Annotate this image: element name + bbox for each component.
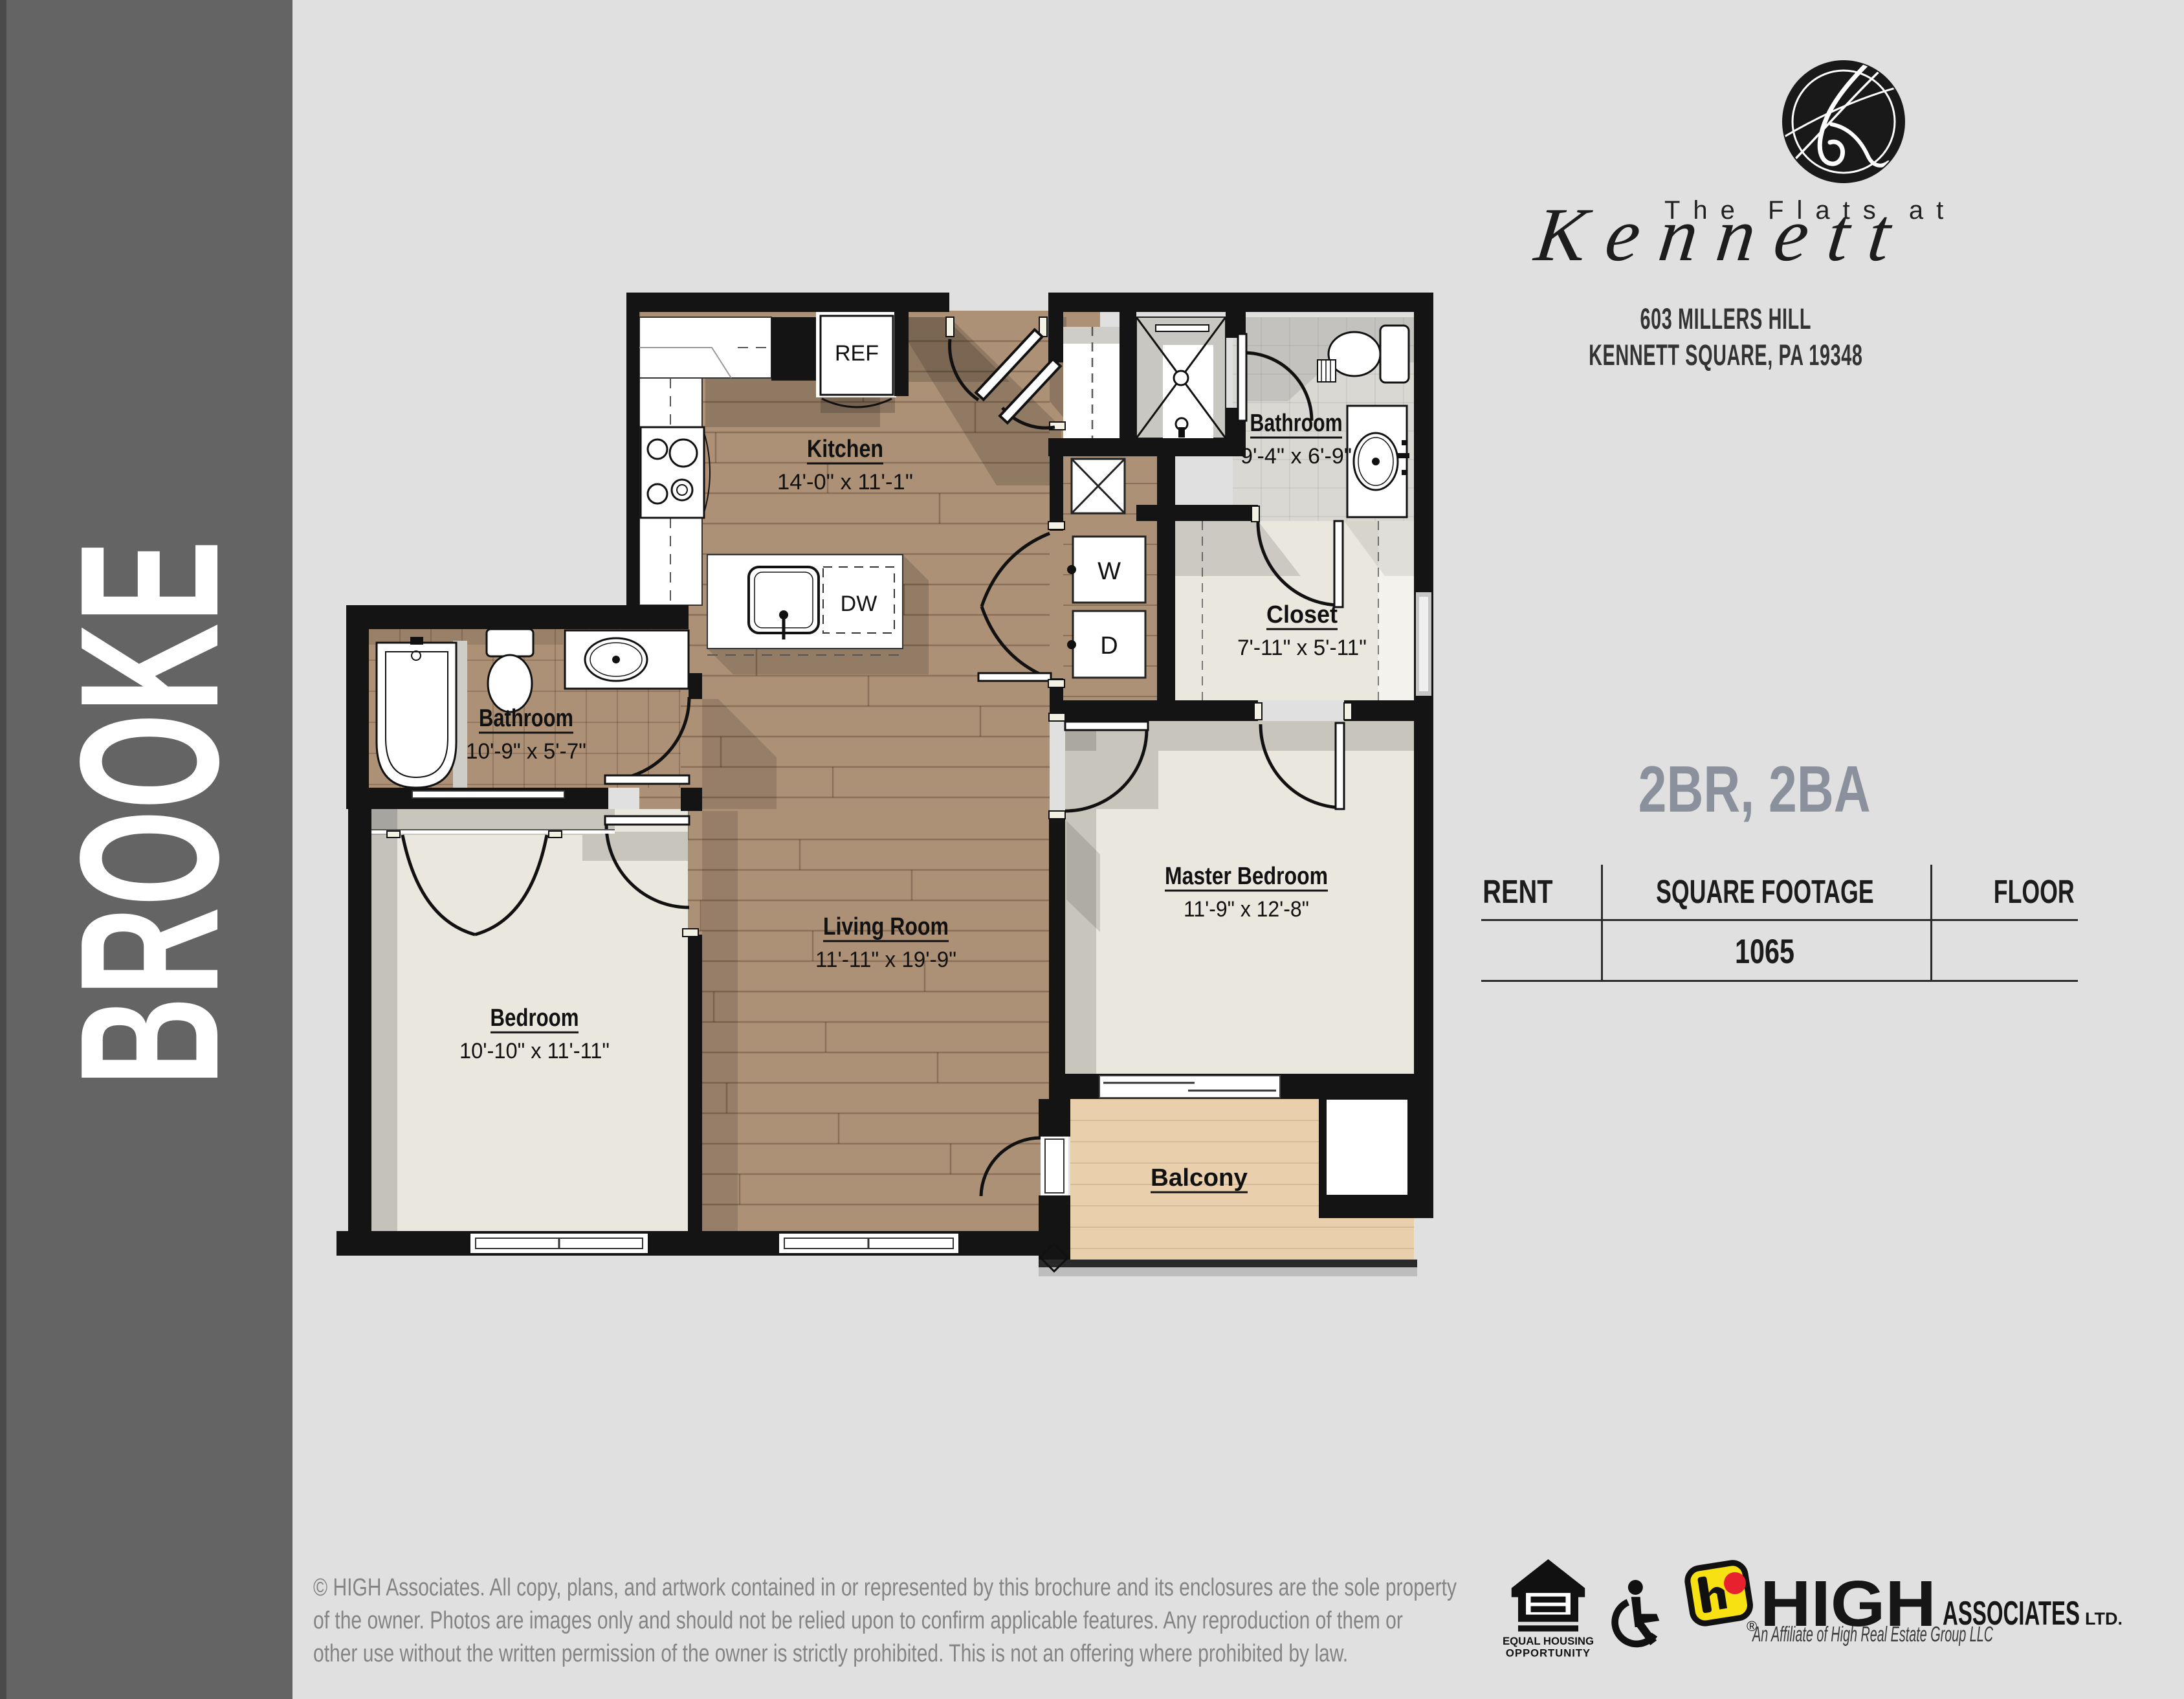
svg-text:7'-11" x 5'-11": 7'-11" x 5'-11" <box>1237 636 1367 660</box>
svg-text:D: D <box>1100 632 1118 660</box>
svg-text:9'-4" x 6'-9": 9'-4" x 6'-9" <box>1241 444 1352 469</box>
svg-text:W: W <box>1098 558 1121 585</box>
svg-text:Bedroom: Bedroom <box>491 1005 579 1032</box>
svg-text:OPPORTUNITY: OPPORTUNITY <box>1506 1647 1591 1660</box>
svg-text:EQUAL HOUSING: EQUAL HOUSING <box>1503 1635 1594 1647</box>
svg-text:REF: REF <box>835 341 879 366</box>
svg-text:10'-9" x 5'-7": 10'-9" x 5'-7" <box>466 739 586 764</box>
svg-text:Bathroom: Bathroom <box>1250 410 1343 437</box>
svg-text:Master Bedroom: Master Bedroom <box>1165 863 1328 890</box>
svg-text:An Affiliate of High Real Esta: An Affiliate of High Real Estate Group L… <box>1752 1622 1994 1646</box>
svg-text:Balcony: Balcony <box>1151 1164 1248 1192</box>
svg-text:DW: DW <box>841 592 877 616</box>
svg-text:14'-0" x 11'-1": 14'-0" x 11'-1" <box>777 470 913 494</box>
svg-text:Kitchen: Kitchen <box>807 436 883 463</box>
svg-text:LTD.: LTD. <box>2085 1609 2123 1628</box>
svg-text:10'-10" x 11'-11": 10'-10" x 11'-11" <box>459 1039 610 1063</box>
svg-text:11'-9" x 12'-8": 11'-9" x 12'-8" <box>1184 897 1309 922</box>
svg-text:Closet: Closet <box>1266 601 1338 628</box>
svg-text:Bathroom: Bathroom <box>479 705 573 732</box>
svg-text:11'-11" x 19'-9": 11'-11" x 19'-9" <box>815 948 956 972</box>
svg-text:Living Room: Living Room <box>823 913 949 940</box>
